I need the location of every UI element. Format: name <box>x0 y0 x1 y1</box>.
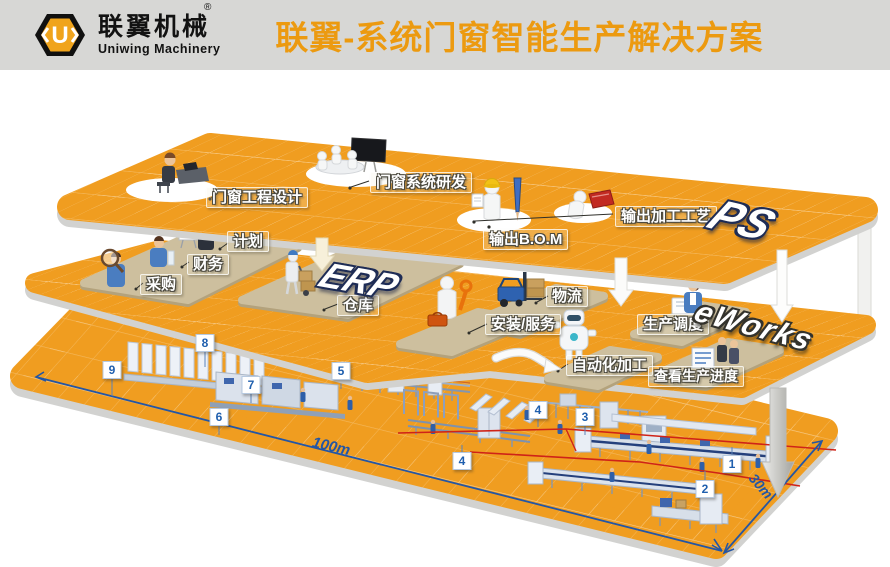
solution-scene: 门窗工程设计 门窗系统研发 输出B.O.M 输出加工工艺 计划 财务 采购 仓库… <box>0 70 890 567</box>
page-title: 联翼-系统门窗智能生产解决方案 <box>275 11 763 59</box>
marker-1: 1 <box>723 455 742 473</box>
label-logistics: 物流 <box>546 286 588 307</box>
poster-page: U 联翼机械® Uniwing Machinery 联翼-系统门窗智能生产解决方… <box>0 0 890 567</box>
marker-4a: 4 <box>529 401 548 419</box>
marker-9: 9 <box>103 361 122 379</box>
label-process: 输出加工工艺 <box>615 206 717 227</box>
company-names: 联翼机械® Uniwing Machinery <box>98 15 220 56</box>
label-plan: 计划 <box>227 231 269 252</box>
marker-8: 8 <box>196 334 215 352</box>
marker-3: 3 <box>576 408 595 426</box>
marker-4b: 4 <box>453 452 472 470</box>
label-rnd: 门窗系统研发 <box>370 172 472 193</box>
marker-2: 2 <box>696 480 715 498</box>
company-name-en: Uniwing Machinery <box>98 43 220 56</box>
label-bom: 输出B.O.M <box>483 229 568 250</box>
marker-7: 7 <box>242 376 261 394</box>
label-progress: 查看生产进度 <box>648 366 744 387</box>
company-logo: U 联翼机械® Uniwing Machinery <box>32 10 220 60</box>
label-install: 安装/服务 <box>485 314 561 335</box>
header-bar: U 联翼机械® Uniwing Machinery 联翼-系统门窗智能生产解决方… <box>0 0 890 70</box>
hexagon-logo-icon: U <box>32 10 88 60</box>
label-finance: 财务 <box>187 254 229 275</box>
label-purchase: 采购 <box>140 274 182 295</box>
registered-mark: ® <box>204 2 211 13</box>
marker-6: 6 <box>210 408 229 426</box>
label-auto: 自动化加工 <box>566 355 653 376</box>
label-design: 门窗工程设计 <box>206 187 308 208</box>
company-name-cn: 联翼机械 <box>98 13 210 41</box>
marker-5: 5 <box>332 362 351 380</box>
svg-text:U: U <box>51 22 68 49</box>
